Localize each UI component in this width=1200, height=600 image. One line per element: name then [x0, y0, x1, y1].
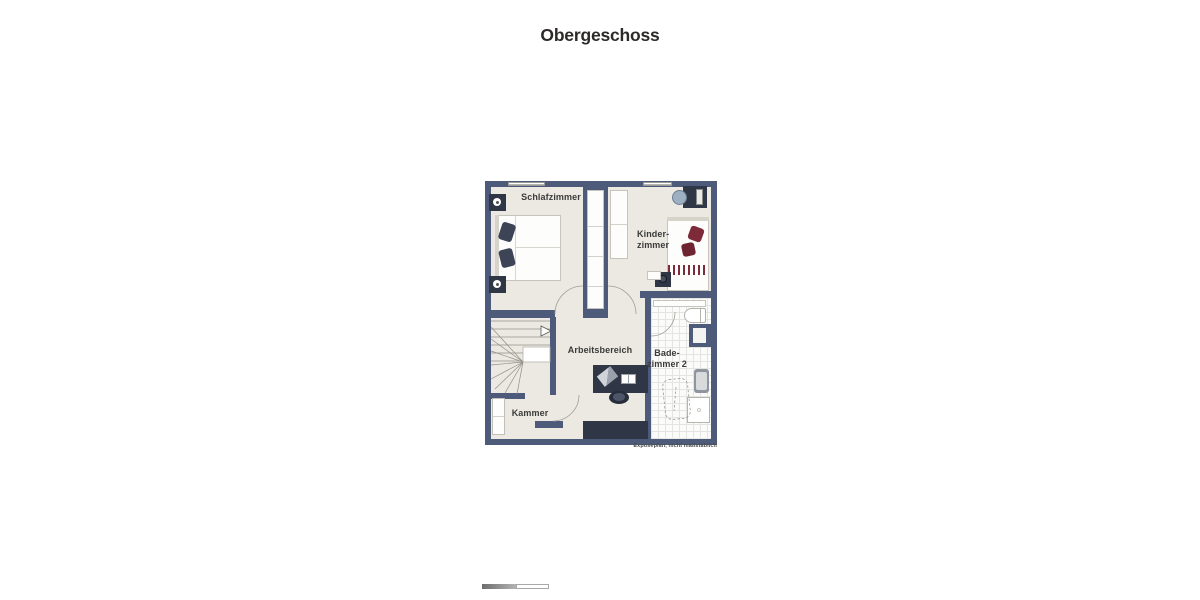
duvet-split-line	[515, 247, 560, 248]
monitor-icon	[696, 189, 703, 205]
radiator	[647, 271, 661, 280]
room-label-kinderzimmer: Kinder- zimmer	[637, 229, 679, 251]
window-icon	[643, 182, 672, 186]
floorplan: Schlafzimmer Kinder- zimmer Arbeitsberei…	[485, 181, 717, 445]
door-swing-kidsroom	[608, 286, 636, 314]
shower-drain-icon	[697, 408, 701, 412]
page-title: Obergeschoss	[0, 25, 1200, 46]
shaft-window	[693, 328, 706, 343]
watermark-text: Illustration Immobilien	[625, 435, 709, 440]
wall-kammer-stub	[535, 421, 563, 428]
closet-shelf-line	[588, 286, 603, 287]
wardrobe-line	[611, 224, 627, 225]
bed-headboard	[495, 215, 499, 281]
desk-chair	[672, 190, 687, 205]
room-label-kammer: Kammer	[495, 408, 565, 419]
room-label-badezimmer: Bade- zimmer 2	[641, 348, 693, 370]
bed-headboard	[667, 217, 709, 221]
window-icon	[508, 182, 545, 186]
book-spine-line	[628, 374, 629, 384]
scale-bar-empty	[516, 584, 549, 589]
floorplan-page: Obergeschoss	[0, 0, 1200, 600]
toilet-tank-line	[700, 308, 701, 323]
lamp-icon	[493, 280, 501, 288]
radiator	[653, 300, 706, 307]
room-label-schlafzimmer: Schlafzimmer	[511, 192, 591, 203]
staircase	[491, 321, 551, 394]
scale-bar	[482, 584, 549, 589]
pillow	[681, 242, 696, 257]
closet-shelf-line	[588, 226, 603, 227]
lamp-icon	[493, 198, 501, 206]
striped-blanket	[667, 265, 709, 275]
scale-bar-filled	[482, 584, 516, 589]
room-label-arbeitsbereich: Arbeitsbereich	[545, 345, 655, 356]
sink-basin	[696, 372, 707, 390]
wall-stair-right	[550, 317, 556, 395]
wall-bedroom-bottom	[485, 310, 555, 318]
closet-shelf-line	[588, 256, 603, 257]
toilet-icon	[684, 308, 706, 323]
door-swing-bedroom	[555, 286, 583, 314]
wall-right	[711, 181, 717, 445]
plan-caption: Exposéplan, nicht maßstäblich	[485, 443, 717, 449]
closet-icon	[587, 190, 604, 309]
office-chair-seat	[613, 393, 625, 401]
